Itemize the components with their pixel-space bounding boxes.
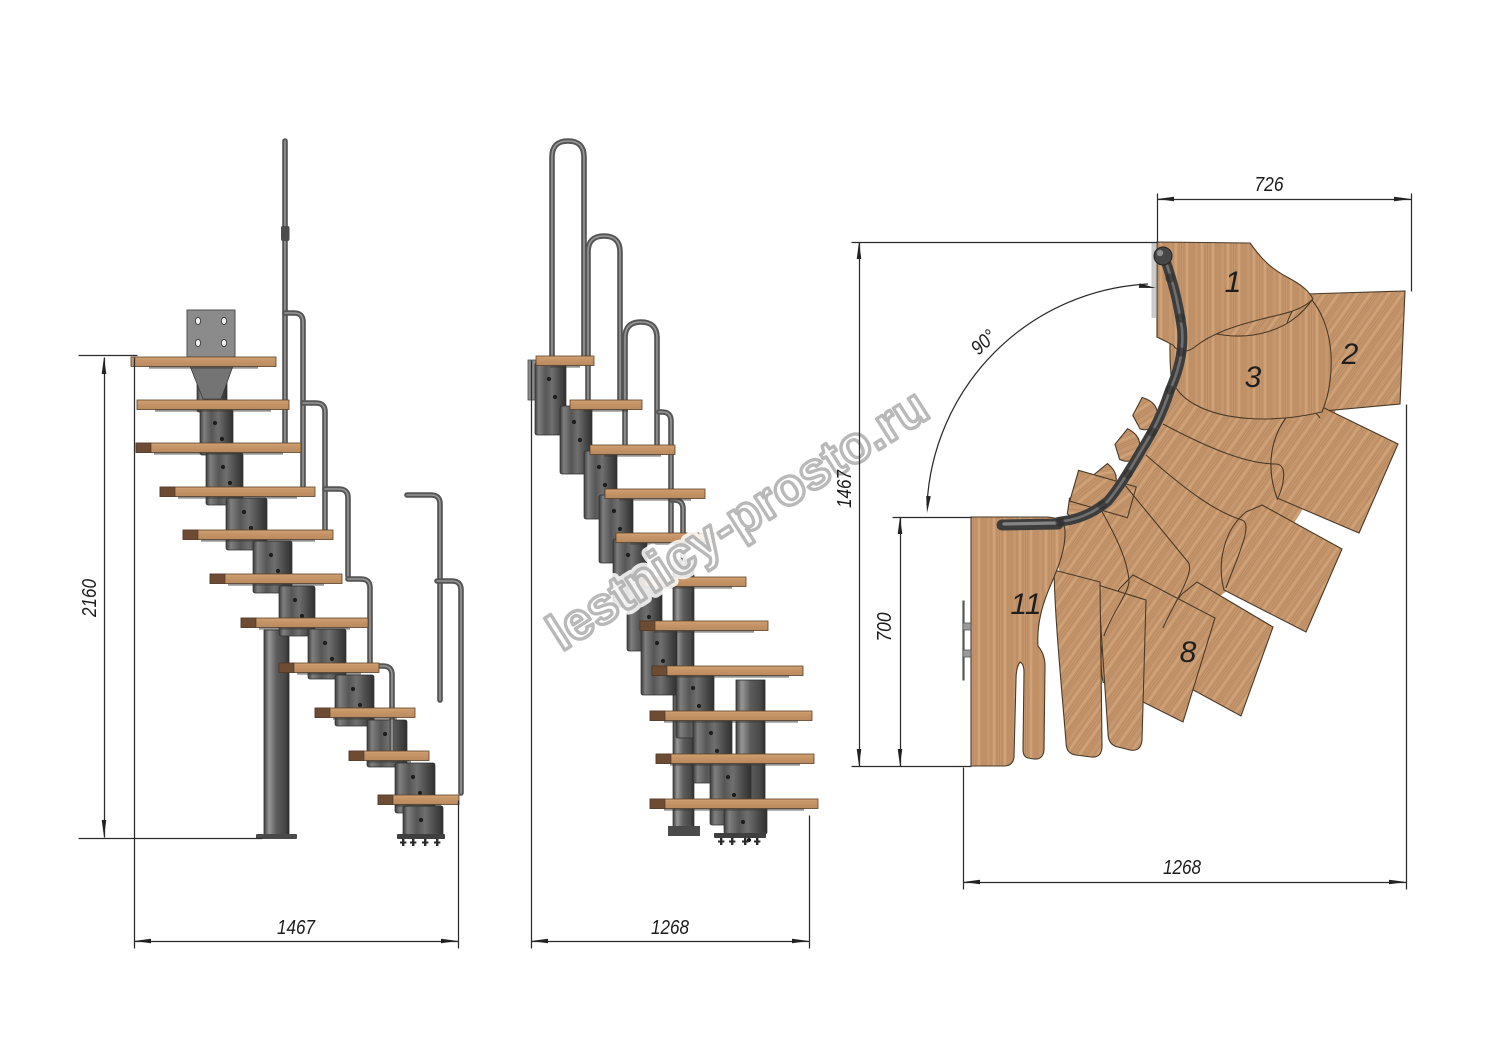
svg-text:1268: 1268 bbox=[651, 917, 689, 939]
svg-text:2: 2 bbox=[1341, 338, 1359, 371]
svg-text:1467: 1467 bbox=[277, 917, 316, 939]
svg-text:11: 11 bbox=[1010, 588, 1041, 621]
svg-text:700: 700 bbox=[874, 613, 896, 642]
svg-text:1467: 1467 bbox=[834, 469, 856, 508]
svg-text:1268: 1268 bbox=[1163, 857, 1201, 879]
svg-text:1: 1 bbox=[1225, 266, 1242, 299]
svg-text:3: 3 bbox=[1245, 361, 1262, 394]
svg-text:8: 8 bbox=[1180, 636, 1197, 669]
svg-text:2160: 2160 bbox=[79, 579, 101, 618]
svg-text:726: 726 bbox=[1255, 174, 1285, 196]
